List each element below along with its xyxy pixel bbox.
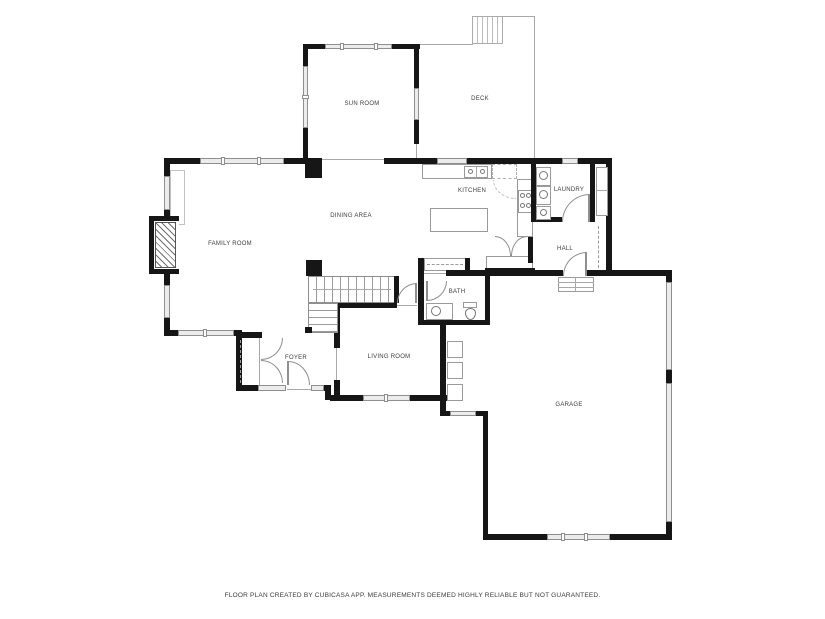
- wall: [334, 380, 340, 400]
- room-label-living-room: LIVING ROOM: [368, 354, 411, 360]
- hall-closet-rod: [598, 226, 599, 268]
- laundry-sink-basin: [540, 209, 547, 216]
- stairs-lower-run: [308, 303, 338, 333]
- stair-post: [306, 260, 322, 276]
- window: [258, 385, 286, 391]
- window-divider: [584, 533, 588, 541]
- garage-shelf: [447, 384, 463, 401]
- deck-edge: [420, 44, 473, 45]
- garage-entry-door-leaf: [585, 252, 587, 276]
- closet-rod: [240, 340, 241, 383]
- dryer-drum: [539, 190, 548, 199]
- garage-entry-door: [563, 252, 587, 276]
- step-edge: [575, 277, 576, 292]
- garage-steps: [558, 277, 594, 292]
- window: [414, 88, 419, 120]
- window: [311, 385, 324, 391]
- room-label-deck: DECK: [471, 96, 489, 102]
- laundry-door: [562, 194, 590, 222]
- room-label-kitchen: KITCHEN: [458, 188, 486, 194]
- laundry-cabinet: [596, 167, 608, 216]
- wall: [590, 163, 595, 222]
- sink-basin: [480, 169, 485, 174]
- wall: [337, 303, 397, 308]
- wall: [483, 411, 488, 540]
- window: [562, 158, 578, 164]
- window: [666, 282, 672, 370]
- stair-landing-door-leaf: [415, 283, 417, 303]
- floor-plan: SUN ROOM DECK KITCHEN LAUNDRY DINING ARE…: [0, 0, 825, 619]
- bath-sink: [431, 306, 441, 316]
- wall: [384, 158, 420, 164]
- window: [666, 383, 672, 522]
- step-edge: [558, 287, 594, 288]
- wall: [236, 385, 258, 391]
- toilet-bowl: [465, 308, 476, 320]
- closet-door: [261, 360, 283, 383]
- stove-burner: [520, 193, 525, 198]
- room-label-family-room: FAMILY ROOM: [208, 241, 252, 247]
- wall: [606, 270, 672, 276]
- bath-door-leaf: [426, 281, 428, 301]
- wall: [414, 120, 419, 144]
- stair-landing-door: [397, 283, 417, 303]
- wall: [528, 237, 533, 263]
- window-divider: [340, 43, 344, 50]
- wall: [446, 270, 488, 276]
- counter-corner: [493, 180, 516, 199]
- stair-rail-line: [313, 289, 391, 290]
- garage-shelf: [447, 341, 463, 358]
- chimney: [305, 158, 322, 178]
- door-threshold: [424, 273, 446, 274]
- laundry-door-leaf: [588, 194, 590, 222]
- window-divider: [302, 95, 309, 99]
- window-divider: [203, 329, 207, 337]
- closet-door: [261, 338, 283, 360]
- pantry-door-left: [495, 236, 511, 256]
- window: [450, 411, 476, 416]
- kitchen-island: [430, 208, 488, 232]
- door-threshold: [287, 389, 311, 390]
- room-label-bath: BATH: [449, 289, 466, 295]
- corridor-closet-rod: [427, 264, 463, 265]
- opening: [322, 159, 384, 160]
- wall: [418, 258, 424, 325]
- opening: [336, 348, 337, 380]
- step-edge: [558, 282, 594, 283]
- door-threshold: [397, 305, 417, 306]
- wall: [418, 320, 490, 325]
- bath-door: [427, 281, 447, 301]
- room-label-dining-area: DINING AREA: [330, 213, 371, 219]
- entry-door-leaf: [287, 361, 289, 385]
- washer-drum: [539, 171, 548, 180]
- wall: [440, 322, 446, 416]
- room-label-foyer: FOYER: [285, 355, 307, 361]
- room-label-garage: GARAGE: [555, 402, 582, 408]
- room-label-hall: HALL: [557, 246, 573, 252]
- sink-divider: [476, 166, 477, 178]
- deck-edge: [534, 16, 535, 159]
- stair-post: [305, 327, 312, 333]
- upper-cabinet: [492, 164, 517, 179]
- window: [547, 534, 610, 540]
- window-divider: [561, 533, 565, 541]
- pantry-door-right: [511, 236, 527, 256]
- deck-stairs: [472, 16, 503, 44]
- garage-shelf: [447, 362, 463, 379]
- fireplace: [155, 222, 176, 268]
- window: [325, 44, 392, 49]
- stove-burner: [520, 203, 525, 208]
- window-divider: [257, 157, 261, 165]
- closet-front: [259, 338, 260, 385]
- wall: [236, 333, 242, 391]
- window-divider: [221, 157, 225, 165]
- window-divider: [384, 394, 388, 402]
- window-divider: [374, 43, 378, 50]
- wall: [488, 270, 563, 276]
- sink-basin: [468, 169, 473, 174]
- room-label-laundry: LAUNDRY: [554, 187, 584, 193]
- wall: [587, 270, 606, 276]
- entry-door: [288, 361, 310, 385]
- opening: [416, 144, 417, 158]
- wall: [414, 44, 419, 88]
- window: [164, 285, 170, 318]
- room-label-sun-room: SUN ROOM: [345, 101, 380, 107]
- wall: [485, 270, 490, 325]
- window: [200, 158, 284, 164]
- cabinet-divider: [596, 190, 608, 191]
- disclaimer-text: FLOOR PLAN CREATED BY CUBICASA APP. MEAS…: [0, 592, 825, 599]
